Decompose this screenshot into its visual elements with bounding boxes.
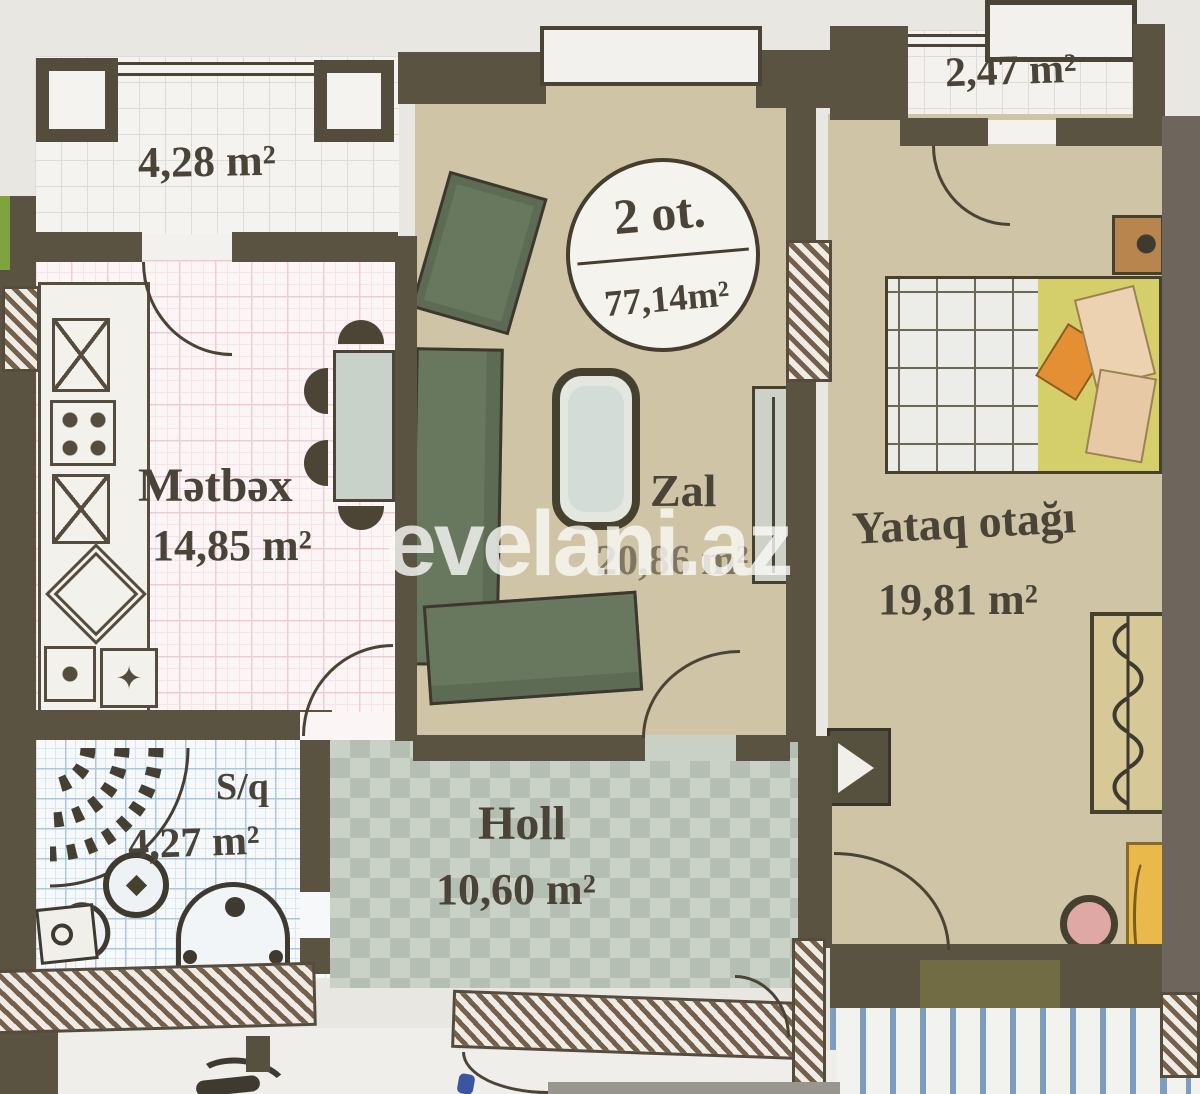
living-room-area-label: 20,86 m²	[596, 540, 749, 582]
balcony-left-area-label: 4,28 m²	[138, 139, 277, 185]
shaft-hatched	[786, 240, 832, 382]
tv	[827, 728, 891, 806]
wall-bottom-left	[0, 1028, 58, 1094]
shaft-hatched	[2, 286, 40, 372]
dining-table	[333, 350, 395, 502]
toilet-drain	[126, 875, 147, 896]
small-appliance	[44, 646, 96, 702]
flower-icon: ✦	[116, 659, 143, 697]
window-bay	[540, 26, 762, 86]
wall-bathroom-hall	[300, 740, 330, 892]
bathroom-area-label: 4,27 m²	[127, 820, 260, 867]
hall-floor	[330, 738, 802, 988]
stove-burners	[50, 400, 116, 466]
cabinet-door-line	[772, 397, 775, 574]
wall-corner-top	[830, 26, 908, 120]
wall-balcony-kitchen	[232, 232, 398, 262]
column	[36, 58, 118, 142]
wall-kitchen-living	[395, 236, 417, 741]
wall-living-hall	[736, 735, 790, 761]
wall-bedroom-bottom-tint	[920, 960, 1060, 1008]
wall-kitchen-bathroom	[35, 710, 332, 740]
hall-area-label: 10,60 m²	[436, 868, 596, 912]
door-gap	[142, 234, 232, 260]
bathroom-name-label: S/q	[216, 768, 269, 806]
door-gap	[645, 735, 736, 761]
wall-living-hall	[413, 735, 645, 761]
wall-hatched-side	[1160, 992, 1200, 1078]
wall-green-accent	[0, 196, 10, 270]
sink-tap	[183, 950, 197, 964]
wall-balcony-bedroom	[900, 118, 988, 146]
wall-column-right	[1133, 24, 1165, 120]
wall-hatched-entry	[0, 962, 317, 1034]
wall-hall-bedroom	[798, 736, 832, 948]
blue-mark	[456, 1073, 475, 1094]
unit-rooms-label: 2 ot.	[565, 180, 755, 246]
tv-screen	[838, 743, 874, 793]
column	[314, 60, 394, 142]
balcony-right-area-label: 2,47 m²	[944, 48, 1077, 95]
hall-name-label: Holl	[478, 800, 566, 848]
neighbor-floor-bottom-right	[830, 1006, 1164, 1094]
unit-area-label: 77,14m²	[573, 273, 762, 326]
oven	[52, 318, 110, 392]
wall-neighbor-right	[1162, 116, 1200, 1006]
kitchen-area-label: 14,85 m²	[152, 524, 312, 568]
bottom-strip	[548, 1082, 840, 1094]
coffee-table	[552, 368, 640, 530]
coffee-table-top	[568, 386, 624, 512]
kitchen-name-label: Mətbəx	[138, 462, 293, 510]
door-gap	[988, 120, 1056, 144]
floor-plan: ✦	[0, 0, 1200, 1094]
washing-machine-drum	[50, 922, 74, 946]
living-room-name-label: Zal	[650, 468, 716, 514]
wardrobe-hangers-icon	[1094, 616, 1162, 810]
wardrobe	[1090, 612, 1166, 814]
wall-stub	[246, 1036, 270, 1072]
door-gap	[300, 892, 330, 938]
wall-balcony-bedroom	[1056, 118, 1164, 146]
wall-hatched-side	[792, 938, 826, 1094]
nightstand	[1112, 215, 1164, 275]
bedroom-name-label: Yataq otağı	[851, 494, 1077, 552]
washing-machine	[35, 903, 99, 965]
bed-blanket-grid	[888, 279, 1040, 471]
wall-living-bedroom	[786, 72, 816, 742]
bedroom-area-label: 19,81 m²	[878, 578, 1038, 622]
wall-living-top-left	[398, 52, 546, 104]
dishwasher	[52, 474, 110, 544]
decor-box: ✦	[100, 648, 158, 708]
balcony-left-railing	[112, 62, 338, 76]
badge-divider	[578, 248, 749, 266]
sofa-chaise	[423, 591, 643, 706]
sink-drain	[225, 897, 245, 917]
wall-balcony-kitchen	[35, 232, 142, 262]
bed	[885, 276, 1162, 474]
